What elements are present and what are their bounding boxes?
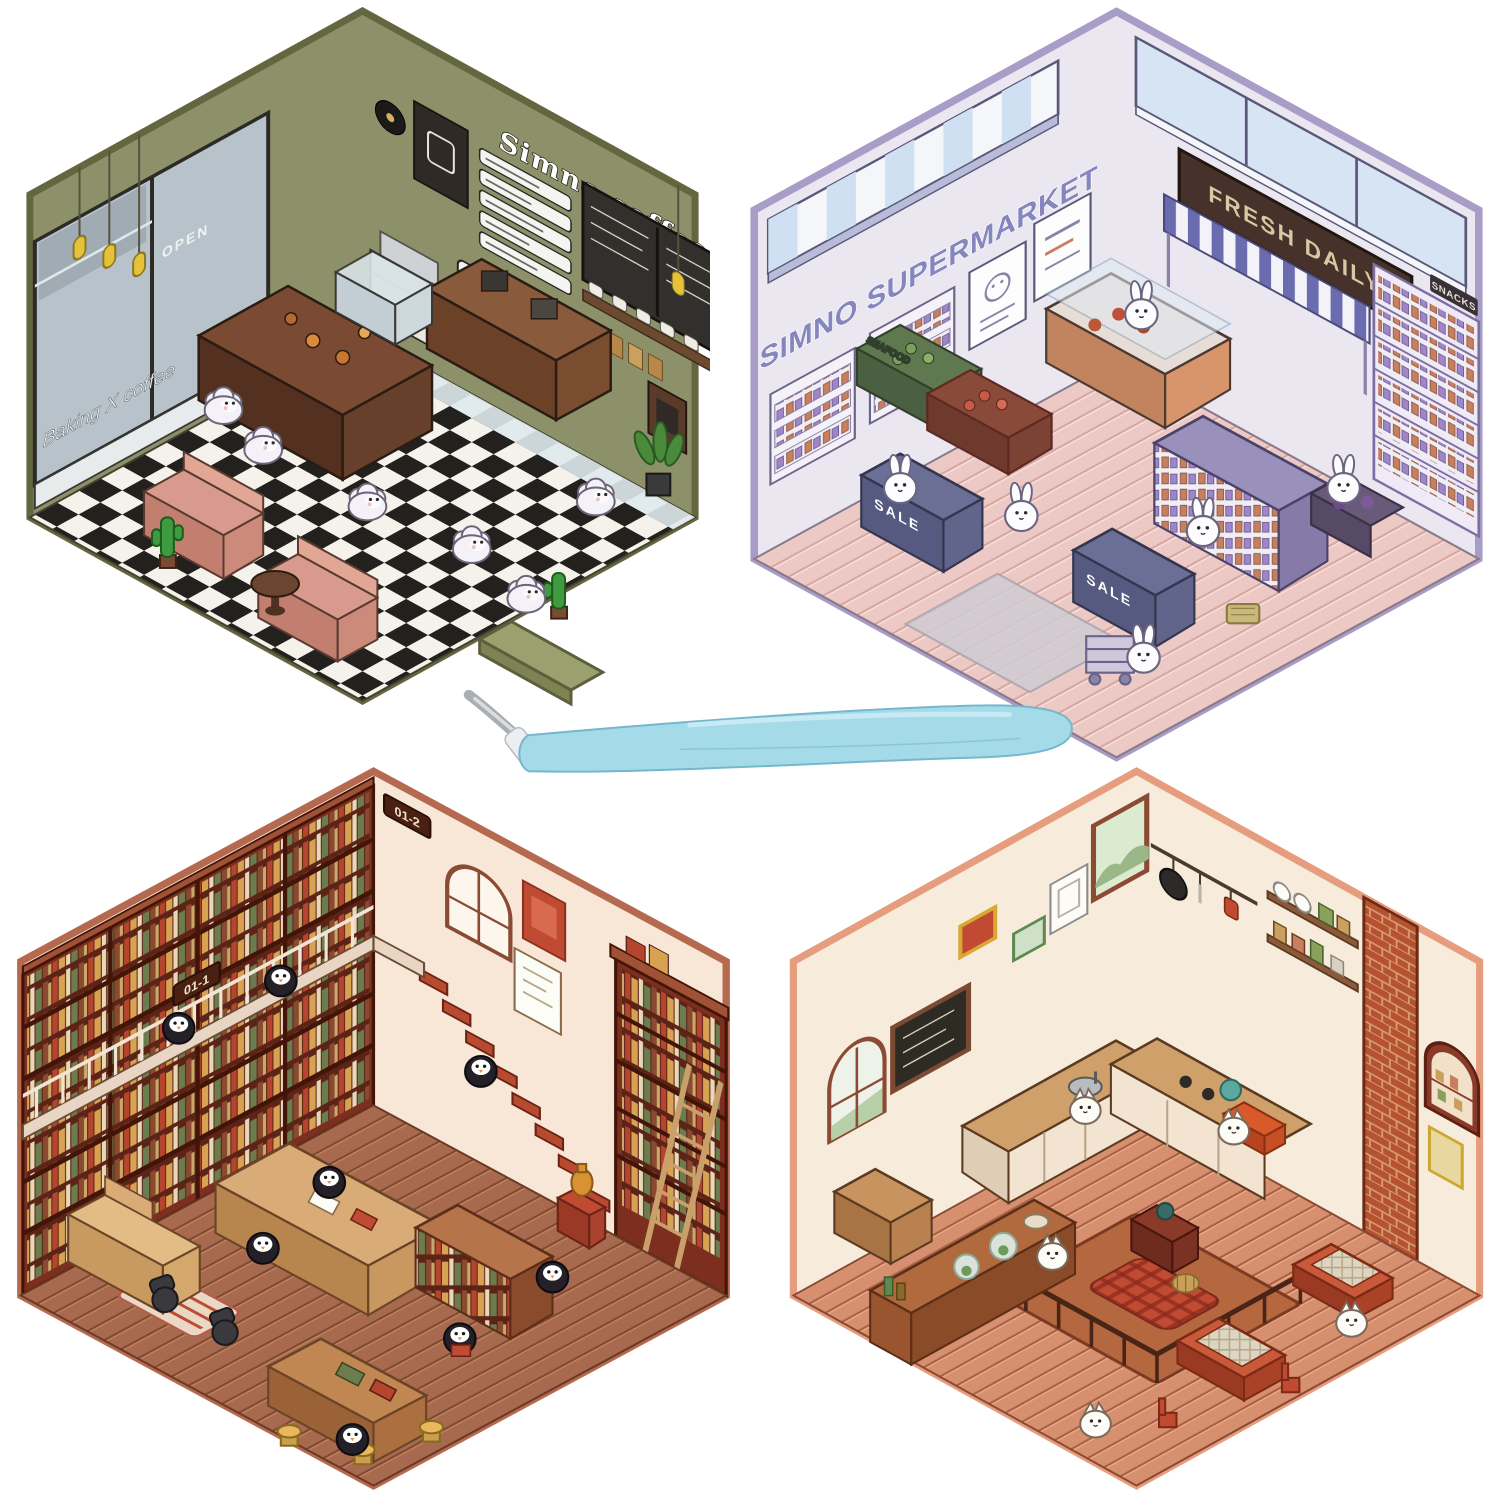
- shopping-basket-icon: [1227, 604, 1259, 623]
- stove-burner-icon: [1180, 1076, 1192, 1088]
- kitchen-illustration: [778, 763, 1495, 1493]
- penguin-character: [247, 1233, 279, 1264]
- penguin-character: [163, 1013, 195, 1044]
- penguin-character: [313, 1167, 345, 1198]
- kitchen-diorama: [778, 763, 1495, 1493]
- penguin-character: [465, 1056, 497, 1087]
- library-illustration: 01-1 01-2: [5, 763, 742, 1493]
- penguin-character: [265, 966, 297, 997]
- library-diorama: 01-1 01-2: [5, 763, 742, 1493]
- cooking-pot-icon: [1220, 1080, 1240, 1101]
- stool-3: [420, 1421, 443, 1442]
- woven-basket-icon: [1172, 1274, 1199, 1293]
- penguin-book: [451, 1345, 470, 1356]
- steamer-basket-icon: [1024, 1214, 1049, 1228]
- product-photo: Baking X coffee OPEN Simno coffee: [0, 0, 1500, 1496]
- brick-chimney: [1364, 897, 1417, 1261]
- stool: [278, 1425, 301, 1446]
- coffee-shop-diorama: Baking X coffee OPEN Simno coffee: [15, 3, 710, 708]
- penguin-character: [337, 1424, 369, 1455]
- supermarket-illustration: SIMNO SUPERMARKET: [738, 3, 1495, 765]
- tweezers-illustration: [430, 678, 1085, 783]
- coffee-shop-illustration: Baking X coffee OPEN Simno coffee: [15, 3, 710, 708]
- kettle-icon: [1157, 1203, 1173, 1219]
- tweezers-tool: [430, 678, 1085, 783]
- supermarket-diorama: SIMNO SUPERMARKET: [738, 3, 1495, 765]
- penguin-character: [537, 1262, 569, 1293]
